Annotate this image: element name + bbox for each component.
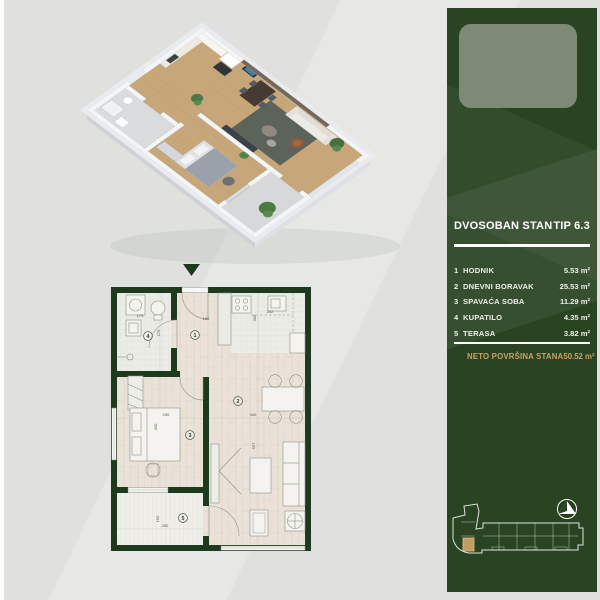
logo-placeholder: [459, 24, 577, 108]
floor-plan-2d: 1 2 3 4 5 170 275 186 300 242 290 430 34…: [103, 258, 323, 558]
svg-text:250: 250: [162, 523, 169, 528]
room-number-3: 3: [189, 433, 192, 439]
svg-text:150: 150: [155, 515, 160, 522]
apartment-type-title: DVOSOBAN STAN: [454, 220, 552, 232]
room-row-spavaca-soba: 3 SPAVAĆA SOBA 11.29 m²: [454, 294, 590, 310]
svg-text:275: 275: [156, 329, 161, 336]
svg-text:340: 340: [250, 412, 257, 417]
svg-text:186: 186: [203, 316, 210, 321]
svg-text:242: 242: [267, 309, 274, 314]
info-sidebar: DVOSOBAN STAN TIP 6.3 1 HODNIK 5.53 m² 2…: [447, 8, 597, 592]
highlighted-unit: [463, 538, 474, 551]
page-left-edge: [0, 0, 4, 600]
net-area-row: NETO POVRŠINA STANA 50.52 m²: [454, 349, 590, 364]
room-number-4: 4: [147, 334, 150, 340]
net-area-value: 50.52 m²: [563, 352, 594, 361]
apartment-title-row: DVOSOBAN STAN TIP 6.3: [454, 220, 590, 232]
room-row-terasa: 5 TERASA 3.82 m²: [454, 325, 590, 341]
iso-plan-group: [80, 22, 377, 243]
svg-text:300: 300: [252, 314, 257, 321]
title-divider: [454, 244, 590, 247]
room-row-kupatilo: 4 KUPATILO 4.35 m²: [454, 310, 590, 326]
total-divider: [454, 342, 590, 344]
room-number-1: 1: [194, 333, 197, 339]
svg-text:290: 290: [163, 412, 170, 417]
entrance-arrow-icon: [183, 264, 200, 276]
building-position-map: [447, 492, 597, 578]
net-area-label: NETO POVRŠINA STANA: [454, 352, 563, 361]
svg-text:557: 557: [251, 442, 256, 449]
compass-icon: [558, 500, 577, 519]
room-list: 1 HODNIK 5.53 m² 2 DNEVNI BORAVAK 25.53 …: [454, 263, 590, 341]
svg-text:170: 170: [137, 313, 144, 318]
room-row-dnevni-boravak: 2 DNEVNI BORAVAK 25.53 m²: [454, 279, 590, 295]
apartment-3d-view: [55, 8, 405, 273]
room-number-2: 2: [237, 399, 240, 405]
svg-text:430: 430: [153, 423, 158, 430]
apartment-type-code: TIP 6.3: [553, 220, 590, 232]
room-number-5: 5: [182, 516, 185, 522]
room-row-hodnik: 1 HODNIK 5.53 m²: [454, 263, 590, 279]
